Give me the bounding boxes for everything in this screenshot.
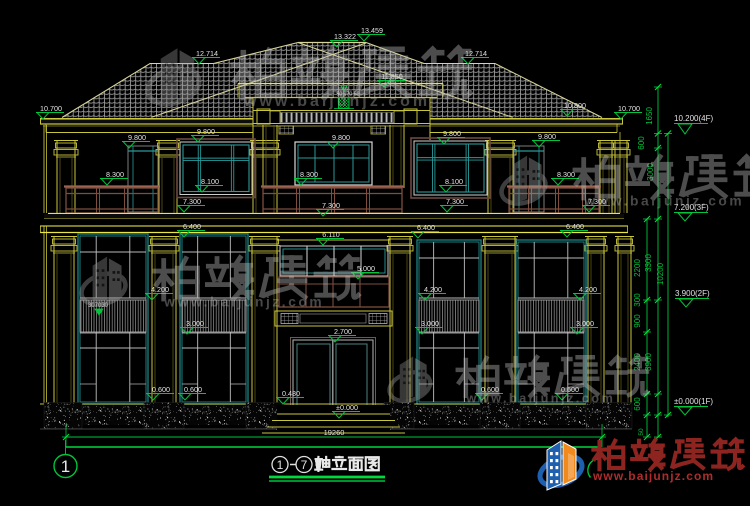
svg-text:19260: 19260 <box>324 428 345 437</box>
svg-text:8.100: 8.100 <box>445 177 463 186</box>
svg-text:9.800: 9.800 <box>332 133 350 142</box>
svg-text:6.400: 6.400 <box>183 222 201 231</box>
svg-text:7.300: 7.300 <box>183 197 201 206</box>
svg-text:www.baijunjz.com: www.baijunjz.com <box>243 93 430 110</box>
svg-text:6.400: 6.400 <box>566 222 584 231</box>
svg-text:7.300: 7.300 <box>446 197 464 206</box>
svg-text:www.baijunjz.com: www.baijunjz.com <box>583 193 744 208</box>
svg-text:1: 1 <box>277 458 284 472</box>
svg-text:10.200(4F): 10.200(4F) <box>674 114 713 123</box>
svg-text:300: 300 <box>633 293 642 307</box>
svg-text:10.800: 10.800 <box>564 101 586 110</box>
svg-text:±0.000(1F): ±0.000(1F) <box>674 397 713 406</box>
svg-text:900: 900 <box>633 314 642 328</box>
svg-text:9.800: 9.800 <box>197 127 215 136</box>
svg-text:10.700: 10.700 <box>618 104 640 113</box>
svg-text:www.baijunjz.com: www.baijunjz.com <box>465 391 615 406</box>
svg-text:6.400: 6.400 <box>417 223 435 232</box>
svg-text:±0.000: ±0.000 <box>336 403 358 412</box>
svg-text:50: 50 <box>638 428 645 436</box>
svg-text:9.800: 9.800 <box>538 132 556 141</box>
svg-text:3.000: 3.000 <box>576 319 594 328</box>
svg-text:12.714: 12.714 <box>196 49 218 58</box>
svg-text:7: 7 <box>301 458 308 472</box>
svg-text:600: 600 <box>633 397 642 411</box>
svg-text:8.300: 8.300 <box>106 170 124 179</box>
svg-text:3.000: 3.000 <box>421 319 439 328</box>
svg-text:0.480: 0.480 <box>282 389 300 398</box>
svg-text:10200: 10200 <box>656 262 665 285</box>
svg-text:9.800: 9.800 <box>443 129 461 138</box>
svg-text:1650: 1650 <box>645 107 654 125</box>
svg-text:4.200: 4.200 <box>151 285 169 294</box>
svg-text:13.459: 13.459 <box>361 26 383 35</box>
svg-text:3.000: 3.000 <box>186 319 204 328</box>
svg-text:3.900(2F): 3.900(2F) <box>675 289 710 298</box>
svg-text:3900: 3900 <box>644 353 653 371</box>
svg-text:www.baijunjz.com: www.baijunjz.com <box>592 469 714 483</box>
svg-text:9.800: 9.800 <box>128 133 146 142</box>
svg-text:www.baijunjz.com: www.baijunjz.com <box>163 294 324 309</box>
svg-text:10.700: 10.700 <box>40 104 62 113</box>
svg-text:0.600: 0.600 <box>184 385 202 394</box>
svg-text:0.600: 0.600 <box>152 385 170 394</box>
svg-text:1: 1 <box>61 457 70 476</box>
svg-text:600: 600 <box>637 136 646 150</box>
svg-text:2200: 2200 <box>633 259 642 277</box>
svg-text:2.700: 2.700 <box>334 327 352 336</box>
svg-text:4.200: 4.200 <box>424 285 442 294</box>
svg-text:7.300: 7.300 <box>322 201 340 210</box>
svg-text:8.300: 8.300 <box>557 170 575 179</box>
svg-text:8.300: 8.300 <box>300 170 318 179</box>
svg-text:8.100: 8.100 <box>201 177 219 186</box>
svg-text:4.200: 4.200 <box>579 285 597 294</box>
svg-text:13.322: 13.322 <box>334 32 356 41</box>
svg-text:6.110: 6.110 <box>322 230 339 239</box>
svg-text:3300: 3300 <box>644 254 653 272</box>
